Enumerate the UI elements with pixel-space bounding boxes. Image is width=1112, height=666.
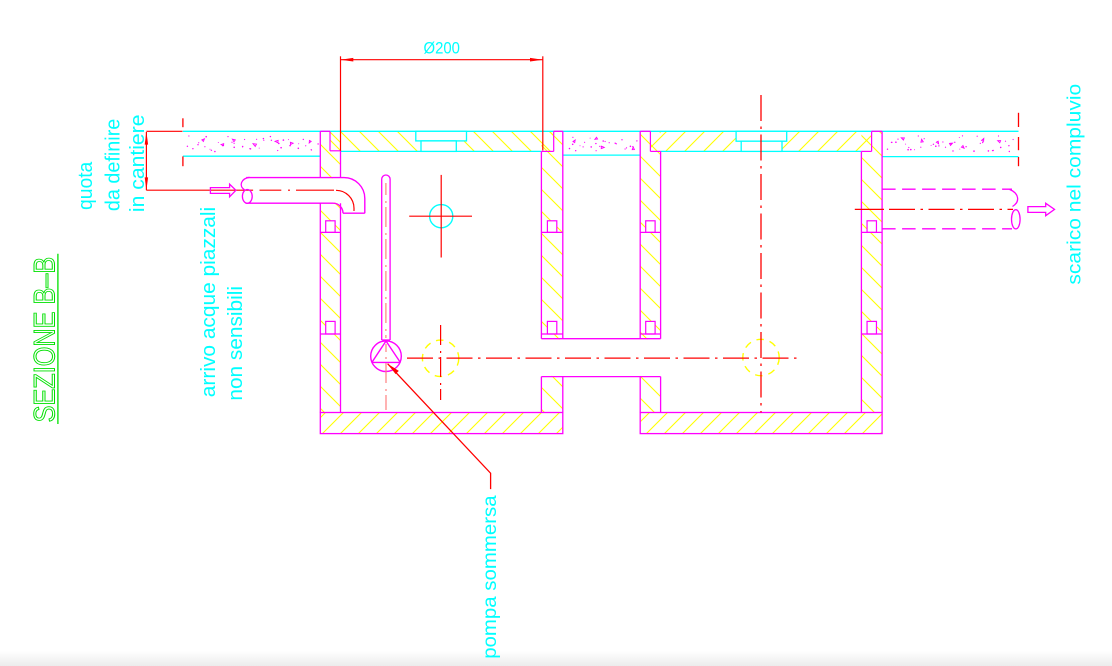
svg-text:in cantiere: in cantiere <box>127 115 149 213</box>
svg-text:SEZIONE B–B: SEZIONE B–B <box>29 257 62 423</box>
svg-text:arrivo acque piazzali: arrivo acque piazzali <box>198 207 220 397</box>
svg-text:Ø200: Ø200 <box>424 39 460 58</box>
svg-text:da definire: da definire <box>103 119 125 211</box>
svg-text:non sensibili: non sensibili <box>225 286 247 401</box>
svg-text:quota: quota <box>75 161 97 210</box>
svg-text:pompa sommersa: pompa sommersa <box>480 495 501 659</box>
svg-text:scarico nel compluvio: scarico nel compluvio <box>1065 84 1086 285</box>
